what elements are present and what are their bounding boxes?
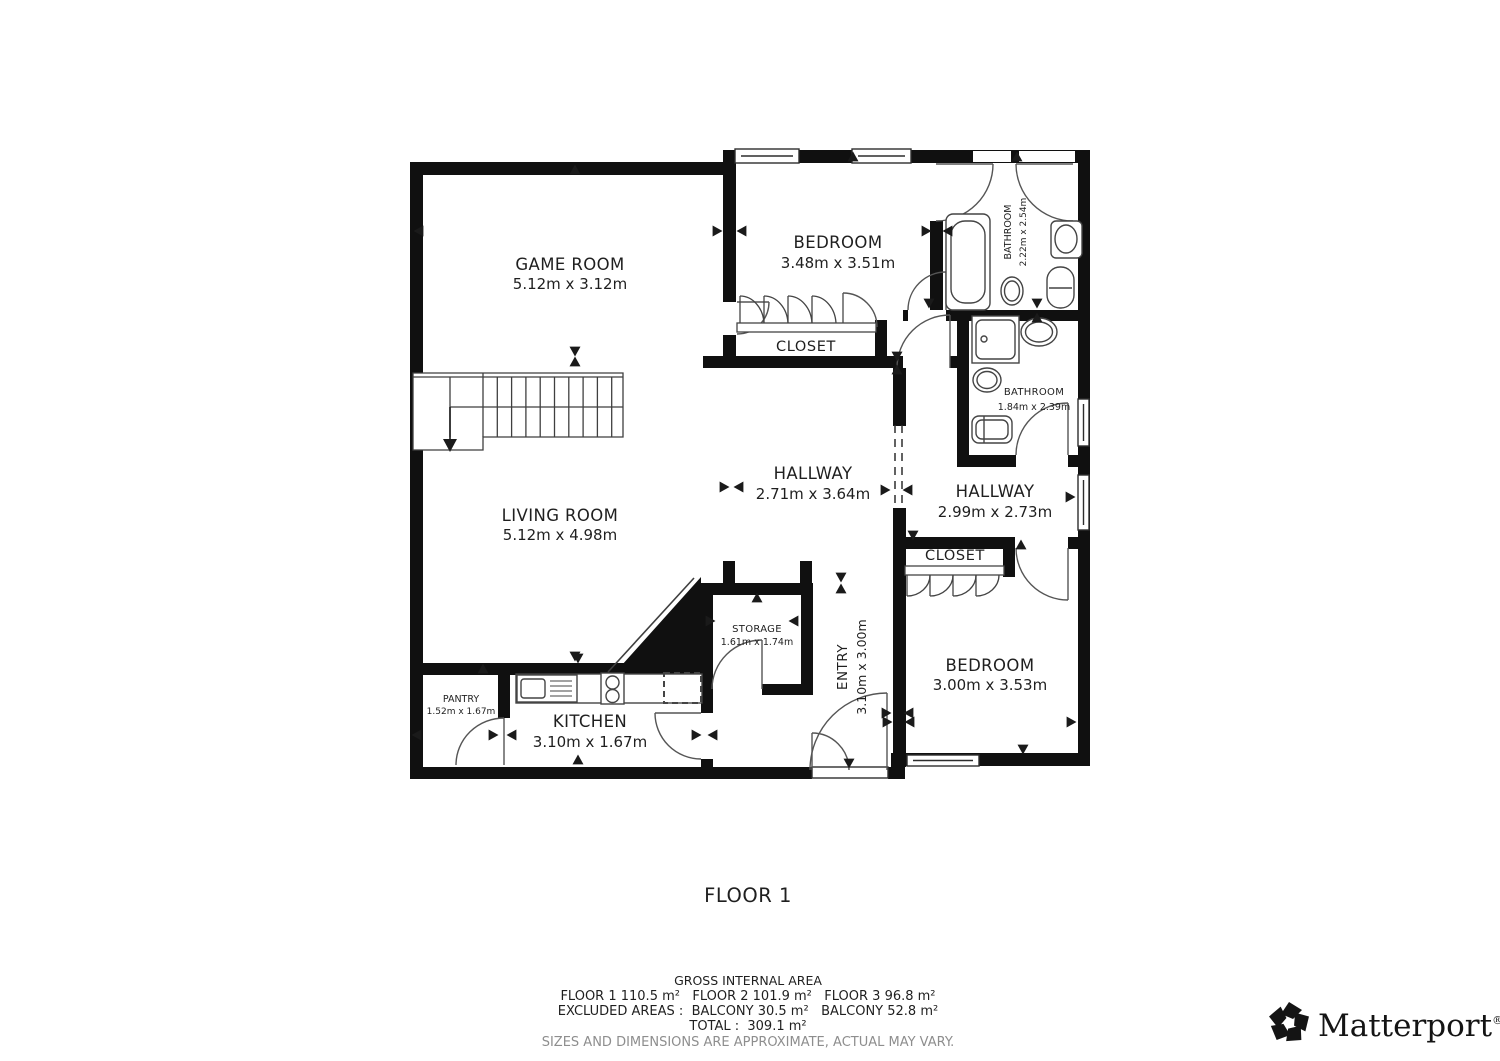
entry-door-threshold	[812, 767, 888, 778]
footer-heading: GROSS INTERNAL AREA	[674, 973, 822, 988]
closet2-track	[905, 566, 1004, 575]
footer-floors: FLOOR 1 110.5 m² FLOOR 2 101.9 m² FLOOR …	[560, 989, 935, 1004]
window-bedroom2	[907, 755, 979, 766]
svg-text:2.71m x 3.64m: 2.71m x 3.64m	[756, 485, 870, 503]
door-bathroom1-left	[936, 164, 993, 221]
room-label-closet2: CLOSET	[925, 548, 985, 564]
bathroom1-fixtures	[946, 214, 1082, 310]
svg-text:2.22m x 2.54m: 2.22m x 2.54m	[1019, 198, 1029, 267]
svg-text:LIVING ROOM: LIVING ROOM	[502, 506, 619, 525]
window-bedroom1-b	[852, 149, 911, 163]
door-entry-right	[810, 693, 887, 770]
svg-text:3.10m x 1.67m: 3.10m x 1.67m	[533, 733, 647, 751]
door-pantry	[456, 718, 504, 765]
svg-text:GAME ROOM: GAME ROOM	[515, 255, 624, 274]
svg-text:CLOSET: CLOSET	[776, 339, 836, 355]
svg-text:PANTRY: PANTRY	[443, 694, 480, 705]
closet1-bifold	[740, 296, 836, 323]
room-label-kitchen: KITCHEN 3.10m x 1.67m	[533, 712, 647, 751]
stairs	[413, 373, 623, 452]
room-label-pantry: PANTRY 1.52m x 1.67m	[427, 694, 496, 717]
svg-text:2.99m x 2.73m: 2.99m x 2.73m	[938, 503, 1052, 521]
floor-title: FLOOR 1	[704, 884, 792, 907]
footer: GROSS INTERNAL AREA FLOOR 1 110.5 m² FLO…	[542, 973, 955, 1050]
svg-text:BEDROOM: BEDROOM	[794, 233, 883, 252]
bathroom2-fixtures	[972, 316, 1057, 443]
svg-text:HALLWAY: HALLWAY	[956, 482, 1035, 501]
svg-text:ENTRY: ENTRY	[835, 644, 851, 690]
room-label-bathroom1: BATHROOM 2.22m x 2.54m	[1003, 198, 1029, 267]
window-bedroom1-a	[735, 149, 799, 163]
svg-text:5.12m x 3.12m: 5.12m x 3.12m	[513, 275, 627, 293]
matterport-logo: Matterport®	[1266, 1002, 1500, 1048]
footer-disclaimer: SIZES AND DIMENSIONS ARE APPROXIMATE, AC…	[542, 1035, 955, 1050]
footer-total: TOTAL : 309.1 m²	[688, 1019, 806, 1034]
door-bedroom2	[1016, 548, 1068, 600]
footer-excluded: EXCLUDED AREAS : BALCONY 30.5 m² BALCONY…	[558, 1004, 938, 1019]
kitchen-fixtures	[516, 673, 702, 704]
closet1-track	[737, 323, 876, 332]
svg-text:CLOSET: CLOSET	[925, 548, 985, 564]
room-label-closet1: CLOSET	[776, 339, 836, 355]
door-closet1-right	[843, 293, 877, 327]
room-label-entry: ENTRY 3.10m x 3.00m	[835, 619, 869, 714]
svg-text:3.00m x 3.53m: 3.00m x 3.53m	[933, 676, 1047, 694]
svg-text:3.10m x 3.00m: 3.10m x 3.00m	[854, 619, 869, 714]
room-label-hallway2: HALLWAY 2.99m x 2.73m	[938, 482, 1052, 521]
svg-text:KITCHEN: KITCHEN	[553, 712, 627, 731]
room-label-living-room: LIVING ROOM 5.12m x 4.98m	[502, 506, 619, 544]
svg-text:BATHROOM: BATHROOM	[1003, 205, 1014, 260]
room-label-bedroom2: BEDROOM 3.00m x 3.53m	[933, 656, 1047, 694]
floorplan-page: GAME ROOM 5.12m x 3.12m BEDROOM 3.48m x …	[0, 0, 1500, 1061]
svg-text:BEDROOM: BEDROOM	[946, 656, 1035, 675]
floorplan-canvas: GAME ROOM 5.12m x 3.12m BEDROOM 3.48m x …	[0, 0, 1500, 1061]
closet2-bifold	[907, 575, 999, 596]
svg-text:HALLWAY: HALLWAY	[774, 464, 853, 483]
door-vestibule-hallway	[897, 315, 950, 368]
svg-text:1.52m x 1.67m: 1.52m x 1.67m	[427, 707, 496, 717]
door-entry-left	[812, 733, 849, 770]
svg-text:BATHROOM: BATHROOM	[1004, 387, 1064, 398]
svg-text:3.48m x 3.51m: 3.48m x 3.51m	[781, 254, 895, 272]
matterport-wordmark: Matterport®	[1318, 1008, 1500, 1044]
room-label-hallway1: HALLWAY 2.71m x 3.64m	[756, 464, 870, 503]
svg-text:1.84m x 2.39m: 1.84m x 2.39m	[998, 402, 1070, 413]
window-bathroom2	[1078, 399, 1089, 446]
svg-text:5.12m x 4.98m: 5.12m x 4.98m	[503, 526, 617, 544]
room-label-bedroom1: BEDROOM 3.48m x 3.51m	[781, 233, 895, 272]
svg-text:STORAGE: STORAGE	[732, 624, 782, 635]
room-label-bathroom2: BATHROOM 1.84m x 2.39m	[998, 387, 1070, 413]
room-label-game-room: GAME ROOM 5.12m x 3.12m	[513, 255, 627, 293]
svg-text:1.61m x 1.74m: 1.61m x 1.74m	[721, 637, 793, 648]
matterport-icon	[1266, 1002, 1313, 1048]
dashed-opening	[895, 425, 902, 508]
window-hallway2	[1078, 475, 1089, 530]
shower	[972, 316, 1019, 363]
room-label-storage: STORAGE 1.61m x 1.74m	[721, 624, 793, 648]
